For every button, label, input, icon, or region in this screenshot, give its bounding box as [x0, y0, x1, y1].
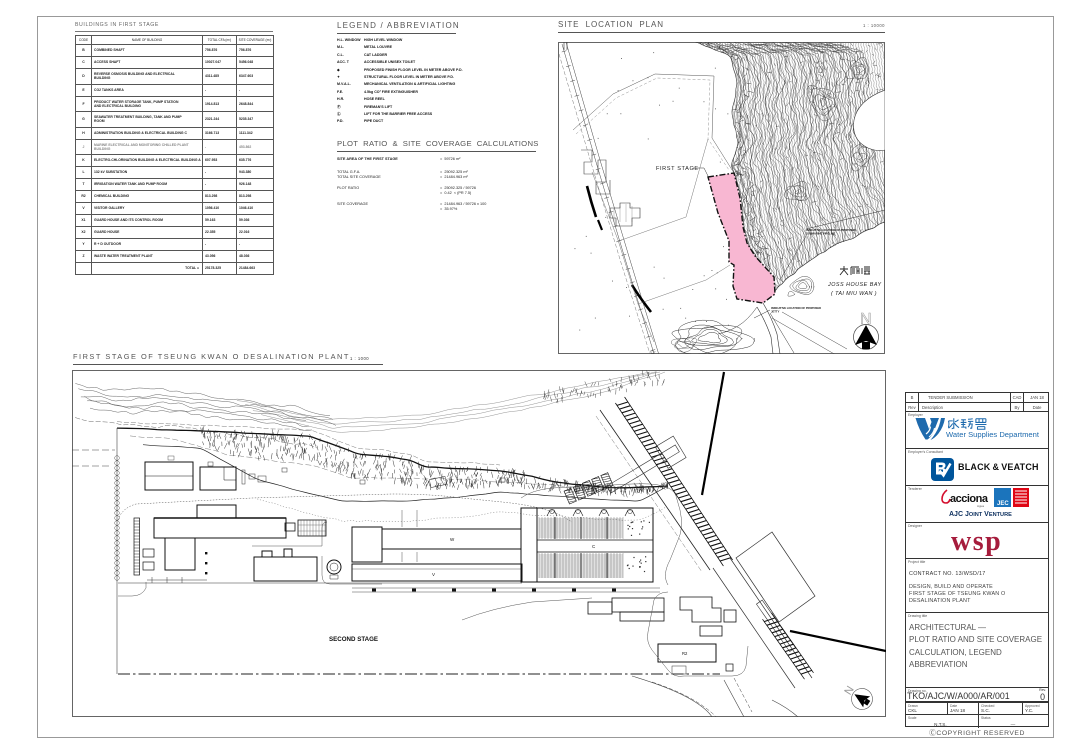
svg-text:V: V: [432, 572, 435, 577]
svg-text:JOSS HOUSE BAY: JOSS HOUSE BAY: [827, 282, 882, 288]
svg-text:INDICATIVE LOCATION OF PROPOSE: INDICATIVE LOCATION OF PROPOSED: [806, 228, 856, 232]
svg-text:( TAI MIU WAN ): ( TAI MIU WAN ): [831, 291, 877, 297]
svg-text:N: N: [842, 684, 856, 697]
svg-text:SECOND STAGE: SECOND STAGE: [329, 636, 378, 643]
svg-text:R2: R2: [682, 651, 688, 656]
svg-text:☆: ☆: [649, 348, 656, 354]
svg-text:SUBMARINE PIPELINE: SUBMARINE PIPELINE: [806, 232, 835, 236]
svg-text:INDICATIVE LOCATION OF PROPOSE: INDICATIVE LOCATION OF PROPOSED: [771, 306, 821, 310]
svg-text:C: C: [592, 544, 596, 549]
svg-text:JETTY: JETTY: [771, 310, 780, 314]
svg-text:W: W: [450, 537, 455, 542]
svg-text:JEC: JEC: [997, 501, 1009, 507]
svg-text:Agua: Agua: [977, 504, 984, 508]
svg-text:FIRST STAGE: FIRST STAGE: [656, 166, 699, 172]
svg-text:AJC JOINT VENTURE: AJC JOINT VENTURE: [949, 511, 1012, 518]
